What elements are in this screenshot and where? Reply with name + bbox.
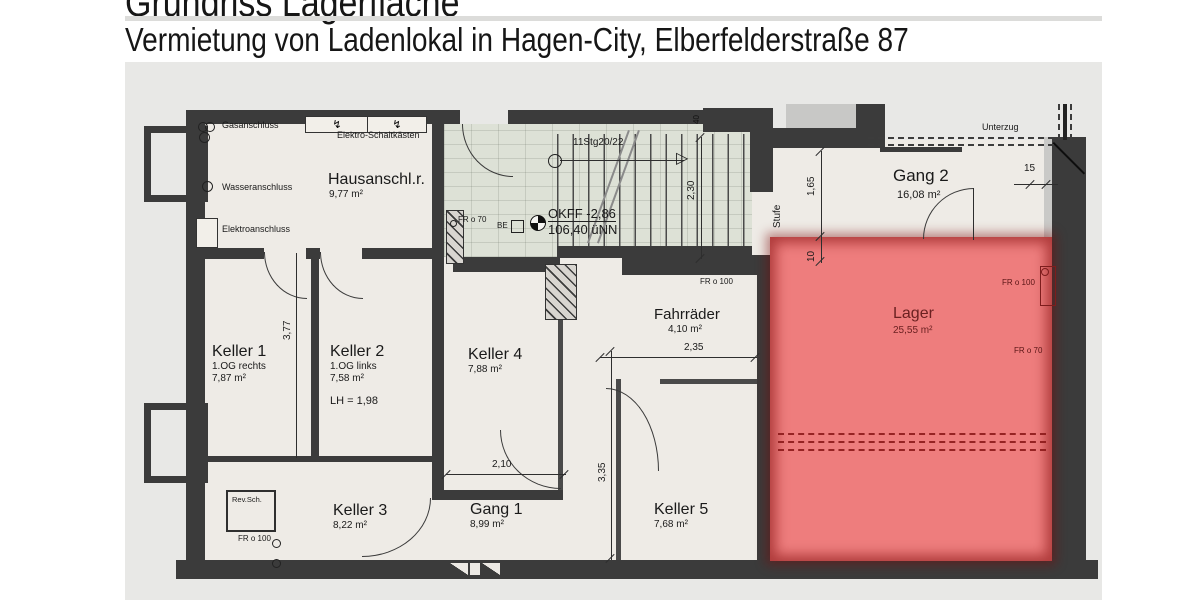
basement-window-pane-right — [482, 563, 500, 575]
wall-stair-divider — [750, 108, 773, 192]
water-valve-icon — [202, 181, 213, 192]
room-label-gang2: Gang 2 — [893, 167, 949, 184]
wall-hall-bottom-left — [453, 257, 560, 272]
room-label-keller5: Keller 5 — [654, 502, 708, 518]
wall-keller4-bottom — [444, 490, 563, 500]
dim-line-235 — [600, 357, 757, 358]
basement-window-pane-middle — [470, 563, 480, 575]
room-floor-keller1: 1.OG rechts — [212, 362, 266, 372]
lager-dash-1 — [778, 433, 1046, 435]
dim-line-335 — [611, 351, 612, 560]
room-area-lager: 25,55 m² — [893, 326, 932, 336]
room-area-hausanschluss: 9,77 m² — [329, 190, 363, 200]
room-label-lager: Lager — [893, 306, 934, 322]
dim-line-230 — [701, 137, 702, 259]
breaker-panels-label: Elektro-Schaltkästen — [337, 131, 420, 140]
fr100-hall-label: FR o 100 — [700, 278, 733, 286]
fr70-lager-label: FR o 70 — [1014, 347, 1042, 355]
dim-label-10: 10 — [807, 251, 817, 262]
unterzug-post — [1063, 104, 1067, 140]
wall-spine-vertical — [432, 124, 444, 500]
room-label-fahrraeder: Fahrräder — [654, 307, 720, 322]
dim-line-15 — [1014, 184, 1058, 185]
stair-direction-arrow-icon: ▷ — [676, 151, 688, 167]
room-floor-keller2: 1.OG links — [330, 362, 377, 372]
lager-dash-3 — [778, 449, 1046, 451]
dim-line-165 — [821, 151, 822, 237]
unterzug-dash-1 — [868, 137, 1054, 139]
stair-walk-start-icon — [548, 154, 562, 168]
unterzug-label: Unterzug — [982, 123, 1019, 132]
dim-line-210 — [446, 474, 566, 475]
water-connection-label: Wasseranschluss — [222, 183, 292, 192]
room-label-keller4: Keller 4 — [468, 347, 522, 363]
unterzug-vdash-1 — [1058, 104, 1060, 140]
be-box — [511, 220, 524, 233]
room-label-gang1: Gang 1 — [470, 502, 522, 518]
wall-keller1-keller2-divider — [311, 248, 319, 456]
room-area-keller4: 7,88 m² — [468, 365, 502, 375]
unterzug-dash-2 — [868, 144, 1054, 146]
fr100-lager-label: FR o 100 — [1002, 279, 1035, 287]
dim-label-165: 1,65 — [807, 177, 817, 196]
wall-bottom — [176, 560, 1098, 579]
lager-dash-2 — [778, 441, 1046, 443]
wall-keller3-top — [190, 456, 432, 462]
wall-fahrraeder-keller5-divider — [660, 379, 757, 384]
room-area-fahrraeder: 4,10 m² — [668, 325, 702, 335]
room-area-keller3: 8,22 m² — [333, 521, 367, 531]
dim-label-15: 15 — [1024, 164, 1035, 174]
room-area-gang1: 8,99 m² — [470, 520, 504, 530]
lager-door-knob-icon — [1041, 268, 1049, 276]
stair-run-label: 11Stg20/22 — [573, 138, 623, 148]
wall-left — [186, 110, 205, 578]
room-area-gang2: 16,08 m² — [897, 190, 940, 201]
page-subtitle: Vermietung von Ladenlokal in Hagen-City,… — [125, 21, 909, 59]
wall-top-middle — [508, 110, 703, 124]
revision-shaft-label: Rev.Sch. — [232, 496, 262, 504]
gas-valve-icon-2 — [205, 122, 215, 132]
room-area-keller1: 7,87 m² — [212, 374, 246, 384]
wall-hausanschluss-bottom-3 — [362, 248, 437, 259]
gas-connection-label: Gasanschluss — [222, 121, 279, 130]
fr100-keller3-label: FR o 100 — [238, 535, 271, 543]
dim-label-235: 2,35 — [684, 343, 703, 353]
room-label-keller2: Keller 2 — [330, 344, 384, 360]
wall-hall-bottom-right — [622, 255, 757, 275]
electric-connection-label: Elektroanschluss — [222, 225, 290, 234]
clear-height-keller2: LH = 1,98 — [330, 396, 378, 407]
gas-valve-icon-3 — [199, 132, 210, 143]
fr100-dot-icon-1 — [272, 539, 281, 548]
stair-walk-line — [560, 160, 684, 161]
room-label-hausanschluss: Hausanschl.r. — [328, 172, 425, 188]
wall-hausanschluss-bottom-1 — [190, 248, 264, 259]
floor-plan-page: Grundriss Lagerfläche Vermietung von Lad… — [0, 0, 1200, 600]
dim-label-377: 3,77 — [283, 321, 293, 340]
stair-landing-edge — [557, 246, 752, 258]
dim-label-335: 3,35 — [598, 463, 608, 482]
duct-shaft-keller4 — [545, 264, 577, 320]
basement-window-pane-left — [450, 563, 468, 575]
dim-line-377 — [296, 253, 297, 458]
step-label: Stufe — [773, 205, 783, 228]
fr100-dot-icon-2 — [272, 559, 281, 568]
fr70-hall-dot-icon — [450, 220, 457, 227]
uenn-level-label: 106,40 üNN — [548, 223, 617, 236]
fr70-hall-label: FR o 70 — [458, 216, 486, 224]
wall-right — [1052, 137, 1086, 578]
room-label-keller1: Keller 1 — [212, 344, 266, 360]
unterzug-bar — [880, 147, 962, 152]
level-benchmark-icon — [530, 215, 546, 231]
door-leaf-gang2 — [973, 188, 974, 240]
be-label: BE — [497, 222, 508, 230]
room-area-keller5: 7,68 m² — [654, 520, 688, 530]
unterzug-vdash-2 — [1070, 104, 1072, 140]
dim-label-230: 2,30 — [687, 181, 697, 200]
room-label-keller3: Keller 3 — [333, 503, 387, 519]
electric-connection-box — [196, 218, 218, 248]
okff-level-label: OKFF -2,86 — [548, 207, 616, 222]
dim-label-210: 2,10 — [492, 460, 511, 470]
dim-label-40: 40 — [693, 115, 701, 124]
room-area-keller2: 7,58 m² — [330, 374, 364, 384]
